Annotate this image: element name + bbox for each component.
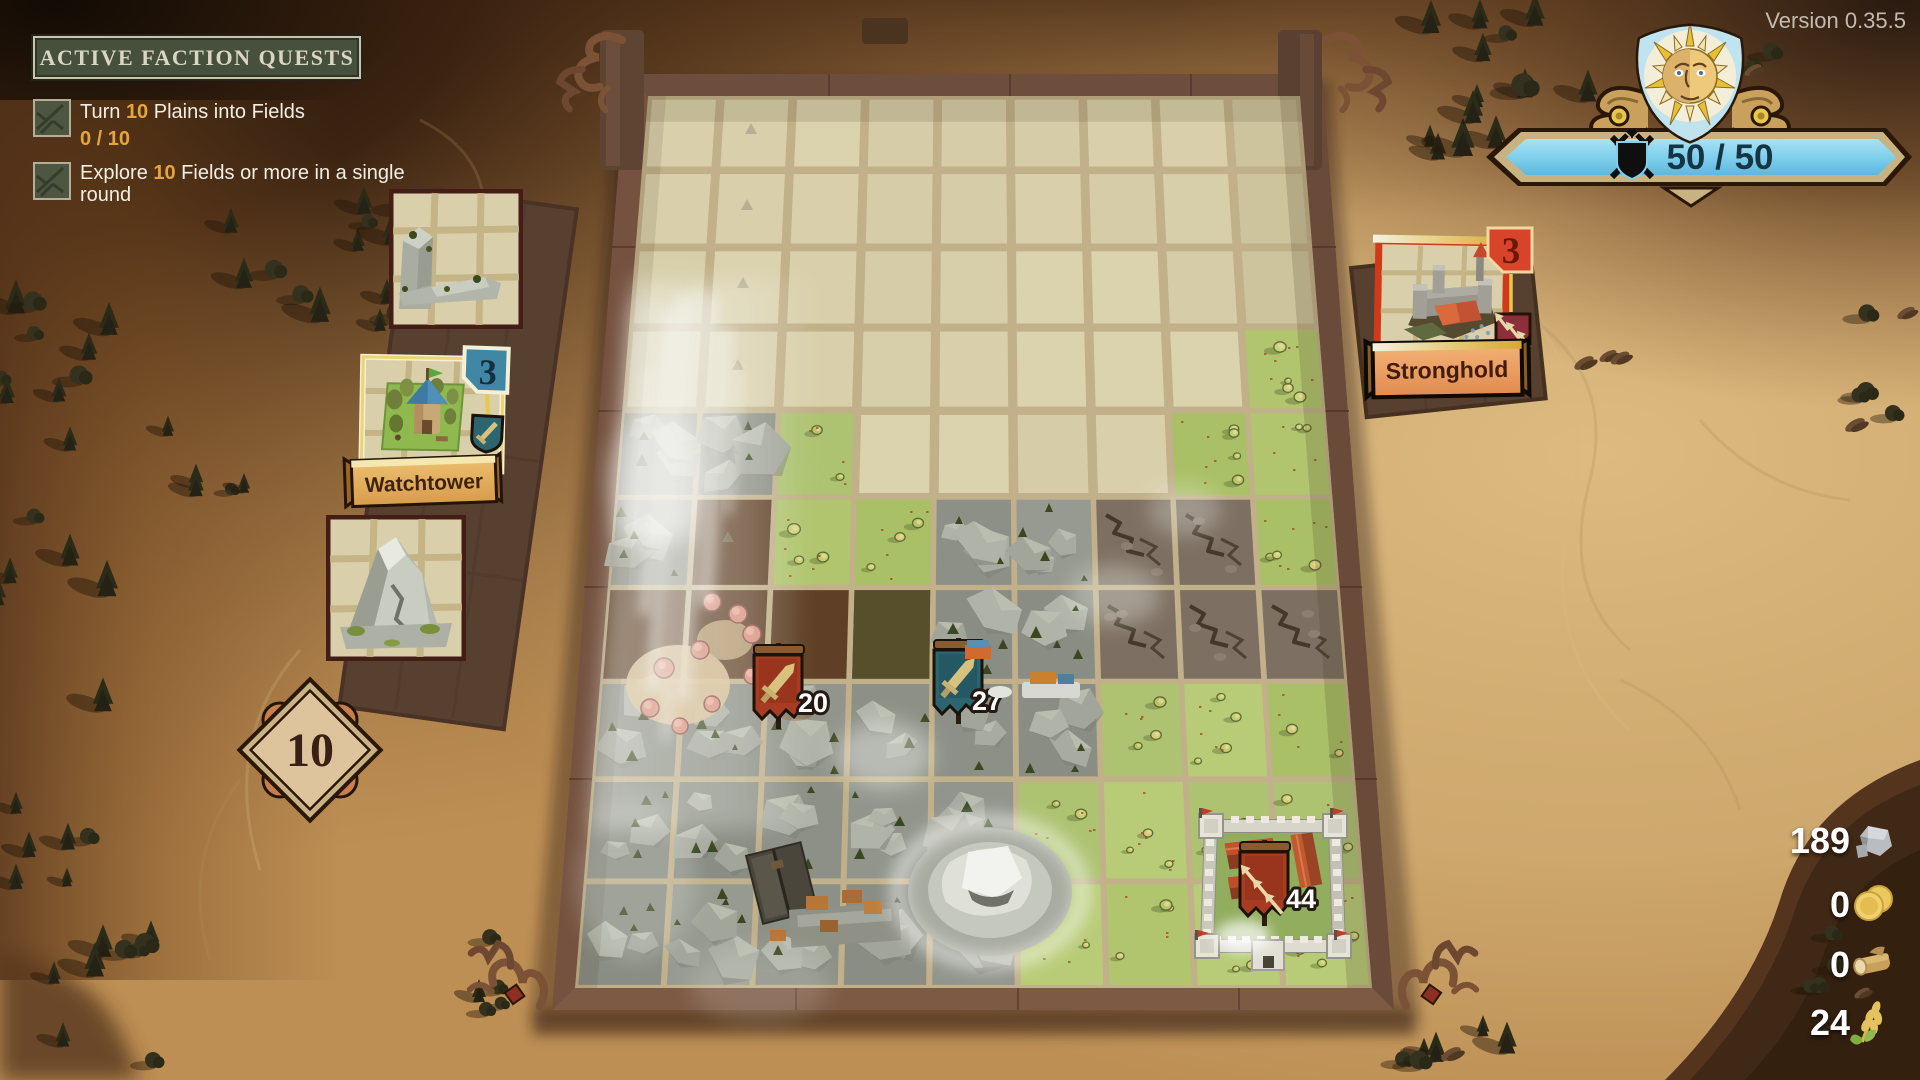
svg-text:Stronghold: Stronghold <box>1385 356 1508 384</box>
svg-text:3: 3 <box>1502 231 1521 272</box>
svg-text:50 / 50: 50 / 50 <box>1666 138 1773 177</box>
svg-text:3: 3 <box>478 352 497 393</box>
svg-text:20: 20 <box>798 688 828 718</box>
svg-text:10: 10 <box>286 724 334 777</box>
svg-text:44: 44 <box>1286 884 1316 914</box>
svg-text:Watchtower: Watchtower <box>365 470 484 497</box>
